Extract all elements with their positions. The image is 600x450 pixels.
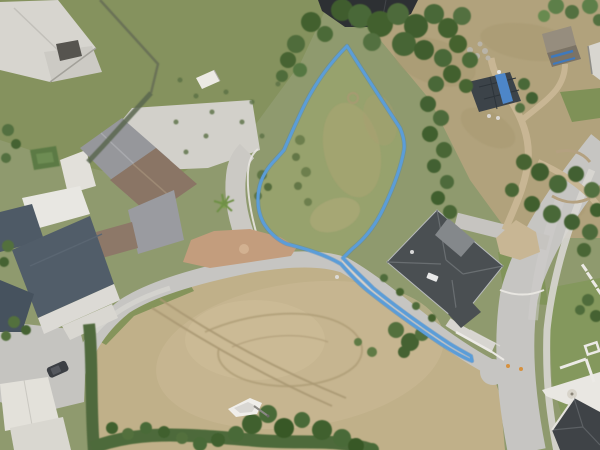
tree bbox=[434, 49, 452, 67]
stone bbox=[482, 48, 488, 54]
shrub bbox=[396, 288, 404, 296]
garden-bed-inner bbox=[36, 152, 54, 164]
tree bbox=[211, 433, 225, 447]
shrub bbox=[11, 139, 21, 149]
road-marker-orange bbox=[506, 364, 510, 368]
tree bbox=[280, 52, 296, 68]
tree bbox=[276, 70, 288, 82]
apron-circle bbox=[239, 244, 249, 254]
tree bbox=[392, 32, 416, 56]
tree bbox=[176, 432, 188, 444]
tree bbox=[564, 214, 580, 230]
tree bbox=[312, 420, 332, 440]
tree bbox=[433, 110, 449, 126]
tree bbox=[140, 422, 152, 434]
shrub bbox=[301, 167, 311, 177]
shrub bbox=[295, 135, 305, 145]
tree bbox=[515, 103, 525, 113]
tree bbox=[287, 35, 305, 53]
roof-vent bbox=[410, 250, 414, 254]
tree bbox=[443, 65, 461, 83]
yard-dot bbox=[487, 114, 491, 118]
tree bbox=[538, 10, 550, 22]
shrub bbox=[380, 274, 388, 282]
tree bbox=[449, 35, 467, 53]
scrub-dot bbox=[184, 150, 189, 155]
shrub bbox=[582, 294, 594, 306]
shrub bbox=[428, 314, 436, 322]
scrub-dot bbox=[178, 78, 183, 83]
shrub bbox=[412, 302, 420, 310]
tree bbox=[363, 33, 381, 51]
tree bbox=[453, 7, 471, 25]
scrub-dot bbox=[250, 100, 255, 105]
tree bbox=[518, 78, 530, 90]
shrub bbox=[294, 182, 302, 190]
manhole bbox=[335, 275, 339, 279]
scrub-dot bbox=[224, 90, 229, 95]
shrub bbox=[1, 153, 11, 163]
tree bbox=[431, 191, 445, 205]
tree bbox=[440, 175, 454, 189]
tree bbox=[301, 12, 321, 32]
tree bbox=[106, 422, 118, 434]
tree bbox=[242, 414, 262, 434]
patio-umbrella-center bbox=[571, 393, 574, 396]
tree bbox=[398, 346, 410, 358]
tree bbox=[549, 175, 567, 193]
shrub bbox=[354, 338, 362, 346]
shrub bbox=[2, 240, 14, 252]
tree bbox=[568, 166, 584, 182]
shrub bbox=[21, 325, 31, 335]
aerial-map bbox=[0, 0, 600, 450]
shrub bbox=[292, 153, 300, 161]
tree bbox=[526, 92, 538, 104]
driveway-west-house bbox=[235, 151, 247, 234]
scrub-dot bbox=[204, 134, 209, 139]
shrub bbox=[367, 347, 377, 357]
stone bbox=[478, 42, 483, 47]
tree bbox=[582, 224, 598, 240]
yard-dot bbox=[496, 116, 500, 120]
hedge-row-vertical bbox=[89, 324, 94, 450]
tree bbox=[122, 428, 134, 440]
tree bbox=[577, 243, 591, 257]
tree bbox=[443, 205, 457, 219]
aerial-map-svg bbox=[0, 0, 600, 450]
scrub-dot bbox=[276, 82, 281, 87]
road-marker-orange bbox=[519, 367, 523, 371]
tree bbox=[565, 5, 579, 19]
scrub-dot bbox=[260, 134, 265, 139]
tree bbox=[317, 26, 333, 42]
shrub bbox=[2, 124, 14, 136]
tree bbox=[584, 182, 600, 198]
tree bbox=[294, 412, 310, 428]
tree bbox=[388, 322, 404, 338]
shrub bbox=[264, 183, 272, 191]
tree bbox=[459, 79, 473, 93]
tree bbox=[414, 40, 434, 60]
tree bbox=[427, 159, 441, 173]
tree bbox=[422, 126, 438, 142]
tree bbox=[293, 63, 307, 77]
scrub-dot bbox=[210, 110, 215, 115]
tree bbox=[228, 426, 244, 442]
trailer-hitch bbox=[267, 415, 270, 418]
tree bbox=[462, 52, 478, 68]
scrub-dot bbox=[174, 120, 179, 125]
tree bbox=[274, 418, 294, 438]
shrub bbox=[304, 198, 312, 206]
tree bbox=[420, 96, 436, 112]
tree bbox=[516, 154, 532, 170]
scrub-dot bbox=[194, 94, 199, 99]
tree bbox=[436, 142, 452, 158]
scrub-dot bbox=[240, 120, 245, 125]
shrub bbox=[1, 331, 11, 341]
tree bbox=[158, 426, 170, 438]
solar-cap bbox=[497, 70, 501, 74]
shrub bbox=[8, 316, 20, 328]
shrub bbox=[575, 305, 585, 315]
stone bbox=[486, 56, 491, 61]
tree bbox=[259, 405, 277, 423]
tree bbox=[531, 163, 549, 181]
tree bbox=[543, 205, 561, 223]
tree bbox=[428, 76, 444, 92]
tree bbox=[505, 183, 519, 197]
tree bbox=[524, 196, 540, 212]
